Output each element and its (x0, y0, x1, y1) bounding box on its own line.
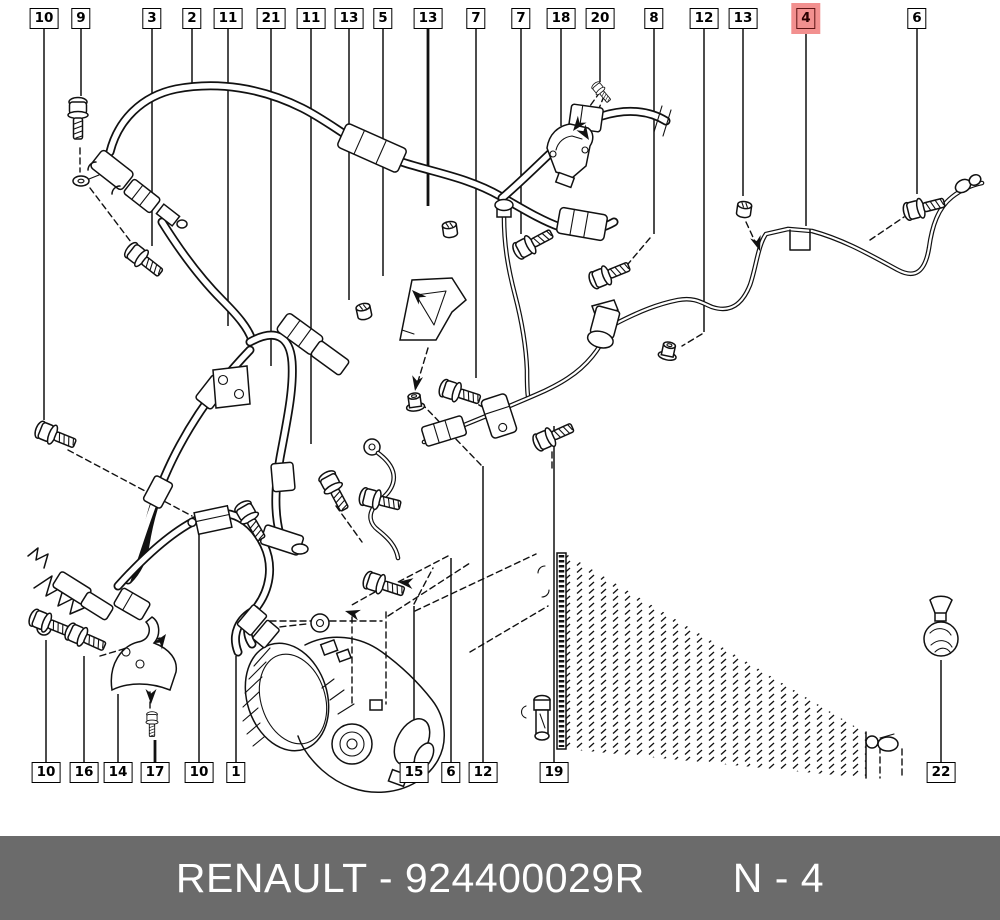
part-callout-10[interactable]: 10 (185, 762, 214, 783)
part-callout-21[interactable]: 21 (257, 8, 286, 29)
footer-part-code: RENAULT - 924400029R (176, 855, 645, 902)
assembly-arrows (146, 116, 766, 704)
part-callout-19[interactable]: 19 (540, 762, 569, 783)
part-callout-8[interactable]: 8 (644, 8, 663, 29)
part-callout-14[interactable]: 14 (104, 762, 133, 783)
part-callout-11[interactable]: 11 (297, 8, 326, 29)
part-callout-22[interactable]: 22 (927, 762, 956, 783)
part-callout-18[interactable]: 18 (547, 8, 576, 29)
part-callout-16[interactable]: 16 (70, 762, 99, 783)
part-callout-11[interactable]: 11 (214, 8, 243, 29)
part-callout-6[interactable]: 6 (907, 8, 926, 29)
part-callout-4-selected[interactable]: 4 (796, 8, 815, 29)
condenser-illustration (522, 553, 903, 778)
part-callout-3[interactable]: 3 (142, 8, 161, 29)
part-callout-10[interactable]: 10 (30, 8, 59, 29)
part-callout-12[interactable]: 12 (690, 8, 719, 29)
part-callout-13[interactable]: 13 (729, 8, 758, 29)
part-callout-10[interactable]: 10 (32, 762, 61, 783)
part-callout-1[interactable]: 1 (226, 762, 245, 783)
footer-page-ref: N - 4 (733, 855, 824, 902)
part-callout-6[interactable]: 6 (441, 762, 460, 783)
part-callout-15[interactable]: 15 (400, 762, 429, 783)
part-callout-12[interactable]: 12 (469, 762, 498, 783)
part-callout-7[interactable]: 7 (466, 8, 485, 29)
grommet-illustration (924, 596, 958, 656)
part-callout-5[interactable]: 5 (373, 8, 392, 29)
part-callout-20[interactable]: 20 (586, 8, 615, 29)
footer-bar: RENAULT - 924400029R N - 4 (0, 836, 1000, 920)
parts-diagram-page: 1093211211113513771820812134610161417101… (0, 0, 1000, 920)
part-callout-7[interactable]: 7 (511, 8, 530, 29)
diagram-artwork (0, 0, 1000, 836)
part-callout-13[interactable]: 13 (414, 8, 443, 29)
part-callout-9[interactable]: 9 (71, 8, 90, 29)
part-callout-2[interactable]: 2 (182, 8, 201, 29)
leader-lines (44, 29, 941, 762)
part-callout-17[interactable]: 17 (141, 762, 170, 783)
part-callout-13[interactable]: 13 (335, 8, 364, 29)
